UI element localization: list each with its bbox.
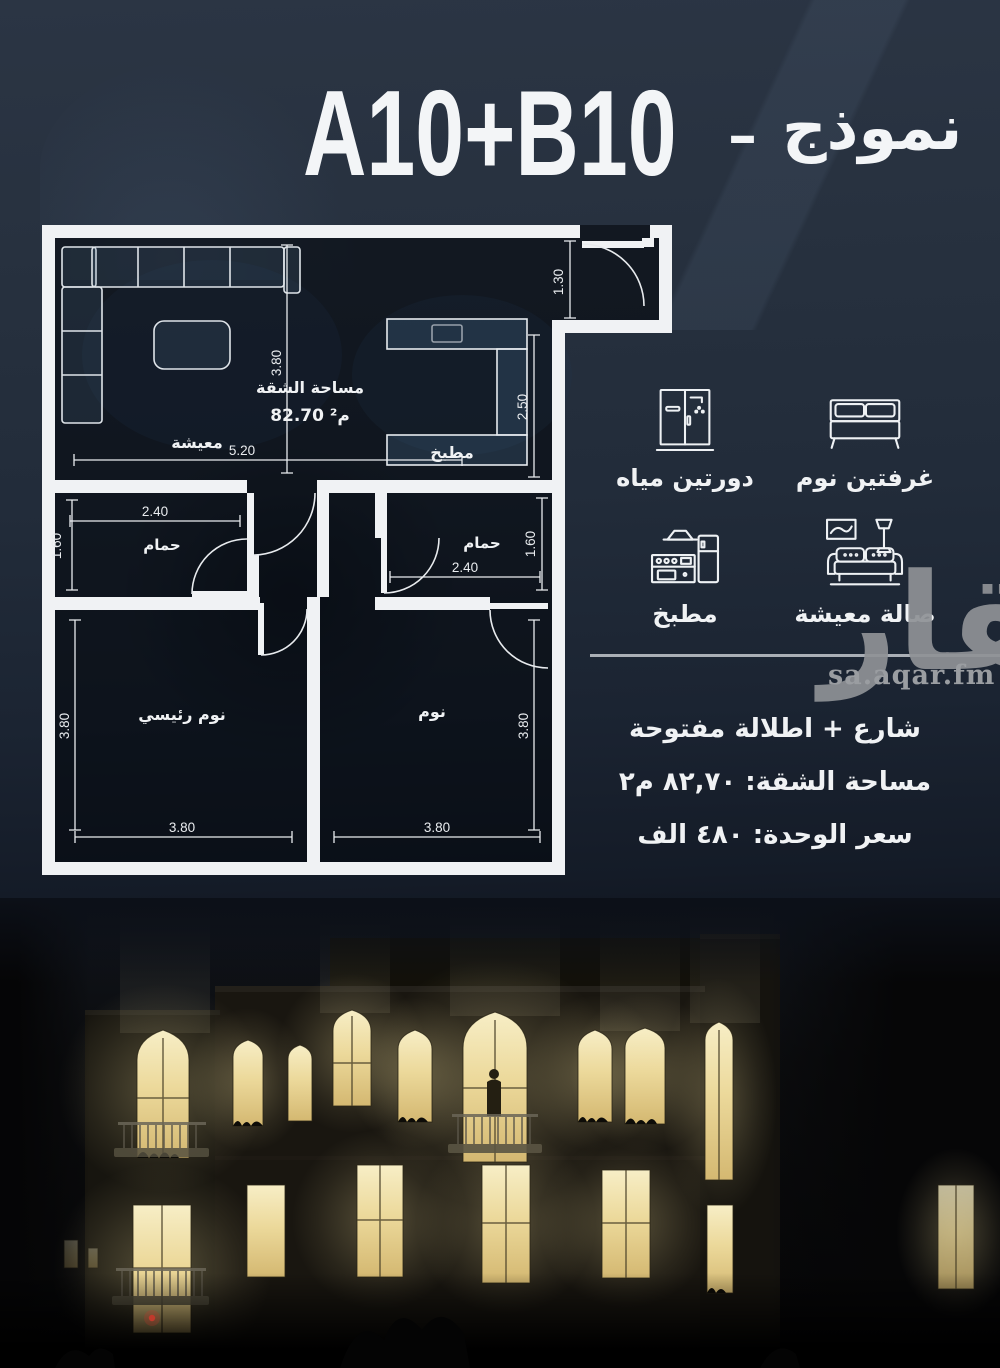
- dim-master-height: 3.80: [57, 713, 72, 739]
- floor-plan-svg: 3.80 5.20 1.30 2.50 2.40 1.60 2.40 1.60 …: [42, 225, 672, 885]
- detail-price: سعر الوحدة: ٤٨٠ الف: [600, 809, 950, 862]
- listing-details: شارع + اطلالة مفتوحة مساحة الشقة: ٨٢,٧٠ …: [600, 703, 950, 862]
- bed-icon: [825, 396, 905, 454]
- real-estate-poster: A10+B10 – نموذج: [0, 0, 1000, 1368]
- red-light: [149, 1315, 155, 1321]
- room-label-master: نوم رئيسي: [138, 705, 226, 725]
- detail-area: مساحة الشقة: ٨٢,٧٠ م٢: [600, 756, 950, 809]
- room-label-bath-left: حمام: [143, 536, 181, 554]
- detail-view: شارع + اطلالة مفتوحة: [600, 703, 950, 756]
- dim-entry-width: 1.30: [551, 269, 566, 295]
- feature-kitchen: مطبخ: [595, 508, 775, 628]
- shower-icon: [655, 386, 715, 454]
- room-label-bedroom: نوم: [418, 702, 446, 721]
- page-title: A10+B10: [303, 72, 677, 194]
- room-label-kitchen: مطبخ: [430, 443, 474, 462]
- dim-kitchen-height: 2.50: [515, 394, 530, 420]
- dim-bath-left-width: 2.40: [142, 504, 168, 519]
- room-label-living: معيشة: [171, 433, 222, 452]
- title-model-word: نموذج: [782, 88, 962, 169]
- dim-bedroom-width: 3.80: [424, 820, 450, 835]
- feature-bedrooms: غرفتين نوم: [775, 372, 955, 492]
- dim-bath-left-height: 1.60: [49, 533, 64, 559]
- dim-living-height: 3.80: [269, 350, 284, 376]
- room-label-bath-right: حمام: [463, 534, 501, 552]
- coffee-table: [154, 321, 230, 369]
- kitchen-icon: [646, 526, 724, 590]
- dim-bedroom-height: 3.80: [516, 713, 531, 739]
- feature-label: دورتين مياه: [616, 464, 754, 492]
- floor-plan: 3.80 5.20 1.30 2.50 2.40 1.60 2.40 1.60 …: [42, 225, 672, 885]
- area-value: م² 82.70: [270, 406, 350, 426]
- building-photo: [0, 898, 1000, 1368]
- dim-master-width: 3.80: [169, 820, 195, 835]
- title-dash: –: [728, 106, 757, 164]
- feature-bathrooms: دورتين مياه: [595, 372, 775, 492]
- dim-bath-right-width: 2.40: [452, 560, 478, 575]
- feature-label: مطبخ: [652, 600, 717, 628]
- building-photo-svg: [0, 898, 1000, 1368]
- feature-label: غرفتين نوم: [796, 464, 934, 492]
- dim-living-width: 5.20: [229, 443, 255, 458]
- watermark-domain: sa.aqar.fm: [828, 660, 995, 691]
- area-title: مساحة الشقة: [256, 378, 364, 397]
- dim-bath-right-height: 1.60: [523, 531, 538, 557]
